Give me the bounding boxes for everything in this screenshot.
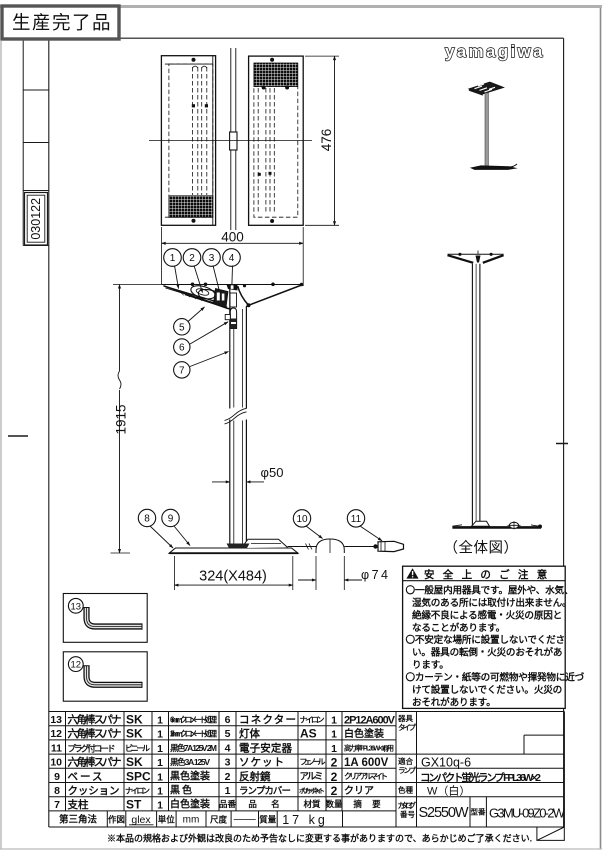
svg-text:〇カーテン・紙等の可燃物や揮発物に近づ: 〇カーテン・紙等の可燃物や揮発物に近づ	[406, 672, 585, 684]
svg-text:SK: SK	[126, 727, 143, 741]
svg-text:12: 12	[71, 660, 82, 671]
svg-text:2P12A600V: 2P12A600V	[344, 715, 396, 727]
svg-text:クッション: クッション	[68, 785, 120, 797]
svg-text:GX10q-6: GX10q-6	[421, 756, 471, 770]
svg-text:黒色塗装: 黒色塗装	[170, 769, 210, 782]
svg-text:黒色7A 125V 2M: 黒色7A 125V 2M	[170, 743, 217, 753]
svg-text:第三角法: 第三角法	[59, 813, 98, 825]
svg-text:六角棒スパナ: 六角棒スパナ	[68, 713, 122, 726]
svg-text:反射鏡: 反射鏡	[239, 770, 271, 783]
svg-text:単位: 単位	[158, 814, 176, 824]
svg-text:G3MU-09Z0-2W: G3MU-09Z0-2W	[489, 806, 566, 821]
svg-text:324(X484): 324(X484)	[199, 569, 267, 585]
svg-text:灯体: 灯体	[239, 727, 260, 740]
svg-text:10: 10	[50, 757, 62, 769]
svg-text:2: 2	[331, 770, 338, 784]
svg-text:尺度: 尺度	[209, 814, 228, 824]
svg-text:6: 6	[225, 714, 231, 726]
svg-text:白色塗装: 白色塗装	[170, 798, 210, 811]
svg-text:ベース: ベース	[68, 771, 105, 783]
svg-text:1: 1	[157, 800, 163, 812]
svg-text:高力率FPL36W×1(6)用: 高力率FPL36W×1(6)用	[344, 744, 394, 753]
svg-text:11: 11	[351, 514, 362, 525]
svg-text:なることがあります。: なることがあります。	[412, 622, 505, 634]
svg-text:摘 要: 摘 要	[353, 799, 384, 809]
svg-text:生産完了品: 生産完了品	[12, 12, 112, 33]
svg-text:030122: 030122	[29, 198, 43, 240]
svg-text:1915: 1915	[114, 404, 129, 434]
svg-text:品番: 品番	[219, 799, 237, 809]
svg-text:3: 3	[209, 253, 215, 264]
svg-text:質量: 質量	[259, 814, 277, 824]
svg-text:型番: 型番	[471, 807, 486, 817]
svg-text:白色塗装: 白色塗装	[344, 727, 384, 740]
svg-text:プラグ付コード: プラグ付コード	[68, 743, 116, 753]
svg-text:1: 1	[157, 757, 163, 769]
svg-text:湿気のある所には取付け出来ません。: 湿気のある所には取付け出来ません。	[412, 597, 571, 609]
svg-text:9: 9	[168, 514, 174, 525]
svg-text:1: 1	[157, 729, 163, 741]
svg-text:1A 600V: 1A 600V	[344, 757, 389, 769]
svg-text:ナイロン: ナイロン	[125, 786, 150, 795]
svg-text:番号: 番号	[399, 809, 415, 819]
svg-text:安全上のご注意: 安全上のご注意	[424, 568, 552, 581]
svg-text:1: 1	[157, 771, 163, 783]
svg-text:ポリカーボネイト: ポリカーボネイト	[299, 786, 325, 795]
svg-text:六角棒スパナ: 六角棒スパナ	[68, 727, 122, 740]
svg-text:2: 2	[225, 771, 231, 783]
svg-text:6: 6	[179, 343, 185, 354]
svg-text:φ50: φ50	[261, 465, 284, 480]
svg-text:ランプカバー: ランプカバー	[239, 785, 291, 797]
svg-text:AS: AS	[300, 727, 317, 741]
svg-text:材質: 材質	[302, 799, 321, 809]
svg-text:適合: 適合	[398, 756, 413, 766]
svg-text:1: 1	[331, 715, 337, 727]
svg-text:3: 3	[225, 757, 231, 769]
svg-text:4: 4	[229, 253, 235, 264]
svg-text:い。器具の転倒・火災のおそれがあ: い。器具の転倒・火災のおそれがあ	[412, 647, 562, 659]
svg-text:おそれがあります。: おそれがあります。	[412, 697, 496, 709]
svg-text:4: 4	[225, 742, 231, 754]
svg-text:8: 8	[144, 514, 150, 525]
svg-text:ランプ: ランプ	[398, 765, 417, 775]
svg-text:yamagiwa: yamagiwa	[445, 42, 545, 61]
svg-text:ります。: ります。	[412, 659, 449, 671]
svg-text:作図: 作図	[108, 814, 125, 824]
svg-text:黒色: 黒色	[170, 784, 194, 797]
svg-text:10: 10	[296, 514, 308, 525]
svg-text:2.5mmクロメート処理: 2.5mmクロメート処理	[170, 729, 217, 739]
svg-text:コンパクト蛍光ランプ FPL36W×2: コンパクト蛍光ランプ FPL36W×2	[420, 771, 541, 784]
svg-text:〇不安定な場所に設置しないでくださ: 〇不安定な場所に設置しないでくださ	[406, 634, 565, 646]
svg-text:けて設置しないでください。火災の: けて設置しないでください。火災の	[412, 684, 562, 696]
svg-text:11: 11	[51, 742, 62, 754]
svg-text:タイプ: タイプ	[398, 722, 417, 732]
svg-text:1: 1	[157, 743, 163, 755]
svg-text:ビニール: ビニール	[125, 743, 150, 753]
svg-text:6mmクロメート処理: 6mmクロメート処理	[170, 715, 217, 725]
svg-text:絶縁不良による感電・火災の原因と: 絶縁不良による感電・火災の原因と	[412, 609, 562, 621]
svg-text:476: 476	[319, 129, 334, 152]
svg-text:（全体図）: （全体図）	[444, 539, 519, 557]
svg-text:器具: 器具	[397, 714, 413, 723]
svg-text:mm: mm	[183, 814, 200, 825]
svg-text:ST: ST	[126, 798, 142, 812]
svg-text:六角棒スパナ: 六角棒スパナ	[68, 756, 122, 769]
svg-text:フェノール: フェノール	[300, 758, 326, 767]
svg-text:13: 13	[50, 714, 62, 726]
svg-text:1: 1	[225, 785, 231, 797]
svg-text:SK: SK	[126, 755, 143, 769]
svg-text:2: 2	[331, 756, 338, 770]
svg-text:クリアアルマイト: クリアアルマイト	[344, 771, 388, 781]
svg-text:8: 8	[54, 785, 60, 797]
svg-text:数量: 数量	[325, 799, 343, 809]
svg-text:ソケット: ソケット	[239, 757, 284, 769]
svg-text:1: 1	[331, 743, 337, 755]
svg-text:品 名: 品 名	[248, 799, 285, 809]
svg-text:クリア: クリア	[344, 785, 374, 797]
svg-text:黒色3A 125V: 黒色3A 125V	[170, 757, 210, 767]
svg-text:2: 2	[189, 253, 195, 264]
svg-text:カタログ: カタログ	[398, 800, 417, 810]
svg-text:13: 13	[71, 601, 82, 612]
svg-text:7: 7	[179, 366, 185, 377]
svg-text:アルミ: アルミ	[300, 771, 324, 782]
svg-text:W（白）: W（白）	[427, 784, 470, 798]
svg-text:色種: 色種	[398, 785, 413, 795]
svg-text:——: ——	[234, 813, 256, 825]
svg-text:5: 5	[225, 728, 231, 740]
svg-text:1: 1	[170, 253, 176, 264]
svg-text:S2550W: S2550W	[419, 805, 469, 821]
svg-text:5: 5	[179, 323, 185, 334]
svg-text:コネクター: コネクター	[239, 714, 296, 726]
svg-text:17 kg: 17 kg	[282, 813, 328, 827]
svg-text:※本品の規格および外観は改良のため予告なしに変更する事があり: ※本品の規格および外観は改良のため予告なしに変更する事がありますので、あらかじめ…	[107, 833, 532, 844]
svg-text:1: 1	[331, 729, 337, 741]
svg-text:〇一般屋内用器具です。屋外や、水気、: 〇一般屋内用器具です。屋外や、水気、	[406, 584, 574, 596]
svg-text:7: 7	[54, 799, 60, 811]
svg-text:glex: glex	[131, 814, 151, 826]
svg-text:400: 400	[221, 230, 244, 245]
svg-text:SPC: SPC	[126, 769, 151, 783]
svg-text:1: 1	[157, 786, 163, 798]
svg-text:ナイロン: ナイロン	[300, 716, 325, 725]
svg-text:支柱: 支柱	[67, 798, 89, 811]
svg-text:9: 9	[54, 771, 60, 783]
svg-text:φ74: φ74	[361, 568, 391, 582]
svg-text:12: 12	[50, 728, 62, 740]
svg-text:1: 1	[157, 715, 163, 727]
svg-text:電子安定器: 電子安定器	[239, 741, 293, 754]
svg-text:2: 2	[331, 784, 338, 798]
svg-text:SK: SK	[126, 713, 143, 727]
